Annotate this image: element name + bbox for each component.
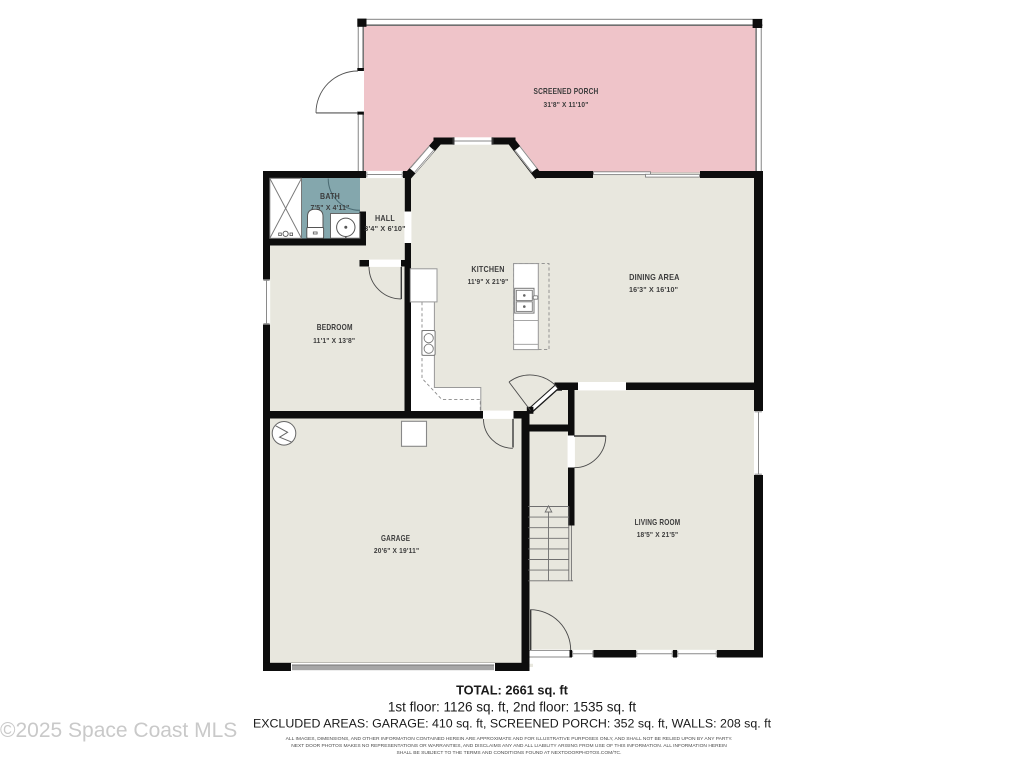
svg-text:16'3" X 16'10": 16'3" X 16'10" (629, 285, 679, 294)
svg-text:11'1" X 13'8": 11'1" X 13'8" (313, 336, 355, 345)
svg-text:BEDROOM: BEDROOM (317, 323, 353, 332)
svg-text:TOTAL: 2661 sq. ft: TOTAL: 2661 sq. ft (456, 683, 569, 698)
svg-text:HALL: HALL (375, 214, 395, 223)
svg-text:18'5" X 21'5": 18'5" X 21'5" (637, 530, 679, 539)
svg-text:GARAGE: GARAGE (381, 534, 410, 543)
svg-text:11'9" X 21'9": 11'9" X 21'9" (468, 277, 509, 286)
svg-text:©2025 Space Coast MLS: ©2025 Space Coast MLS (0, 719, 237, 742)
svg-text:NEXT DOOR PHOTOS MAKES NO REPR: NEXT DOOR PHOTOS MAKES NO REPRESENTATION… (291, 743, 727, 749)
svg-text:SHALL BE SUBJECT TO THE TERMS: SHALL BE SUBJECT TO THE TERMS AND CONDIT… (397, 750, 622, 756)
svg-text:EXCLUDED AREAS: GARAGE: 410 sq: EXCLUDED AREAS: GARAGE: 410 sq. ft, SCRE… (253, 717, 772, 731)
svg-text:ALL IMAGES, DIMENSIONS, AND OT: ALL IMAGES, DIMENSIONS, AND OTHER INFORM… (286, 736, 733, 742)
svg-text:3'4" X 6'10": 3'4" X 6'10" (364, 224, 406, 233)
svg-text:BATH: BATH (320, 192, 340, 201)
svg-text:LIVING ROOM: LIVING ROOM (635, 518, 681, 527)
svg-text:SCREENED PORCH: SCREENED PORCH (534, 87, 599, 96)
svg-text:DINING AREA: DINING AREA (629, 273, 680, 282)
svg-text:7'5" X 4'11": 7'5" X 4'11" (311, 203, 350, 212)
svg-text:1st floor: 1126 sq. ft, 2nd fl: 1st floor: 1126 sq. ft, 2nd floor: 1535 … (388, 700, 636, 715)
svg-text:31'8" X 11'10": 31'8" X 11'10" (544, 100, 589, 109)
svg-text:KITCHEN: KITCHEN (471, 265, 504, 274)
svg-text:20'6" X 19'11": 20'6" X 19'11" (374, 546, 420, 555)
